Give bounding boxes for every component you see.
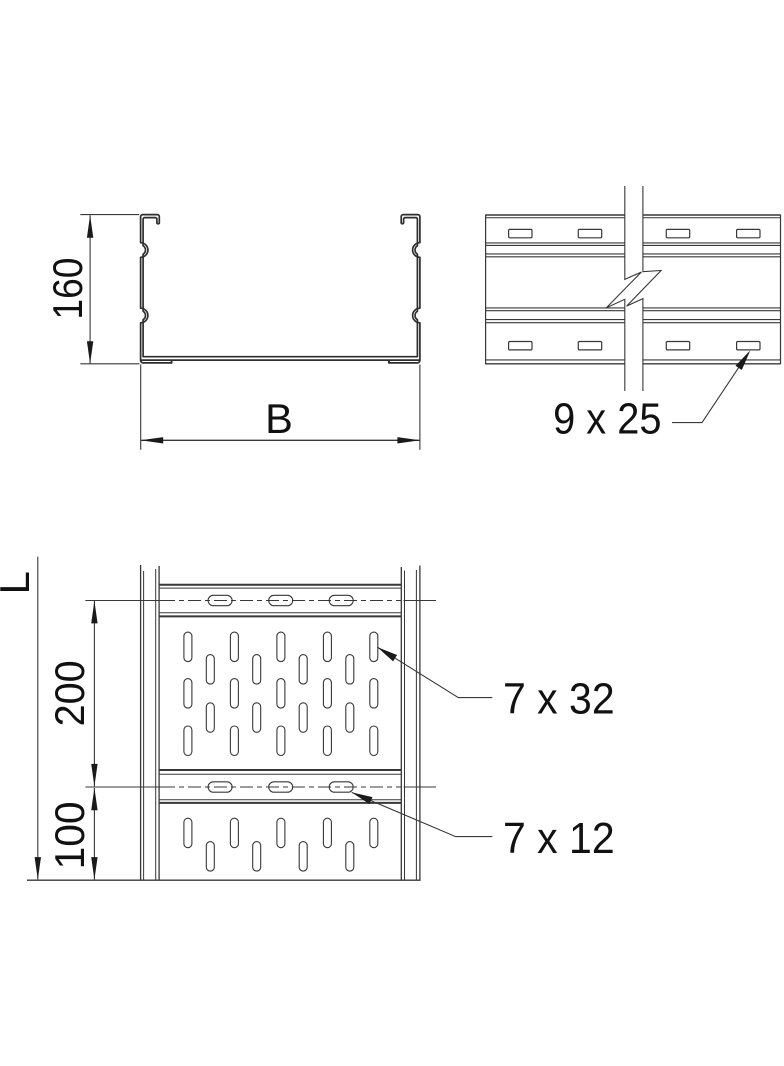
svg-text:L: L (0, 571, 38, 594)
svg-text:7 x 12: 7 x 12 (503, 815, 615, 863)
svg-text:9 x 25: 9 x 25 (553, 395, 661, 444)
svg-text:200: 200 (46, 660, 93, 726)
svg-text:B: B (265, 395, 293, 442)
svg-text:100: 100 (46, 801, 93, 869)
svg-text:160: 160 (44, 258, 91, 320)
svg-text:7 x 32: 7 x 32 (503, 676, 615, 724)
